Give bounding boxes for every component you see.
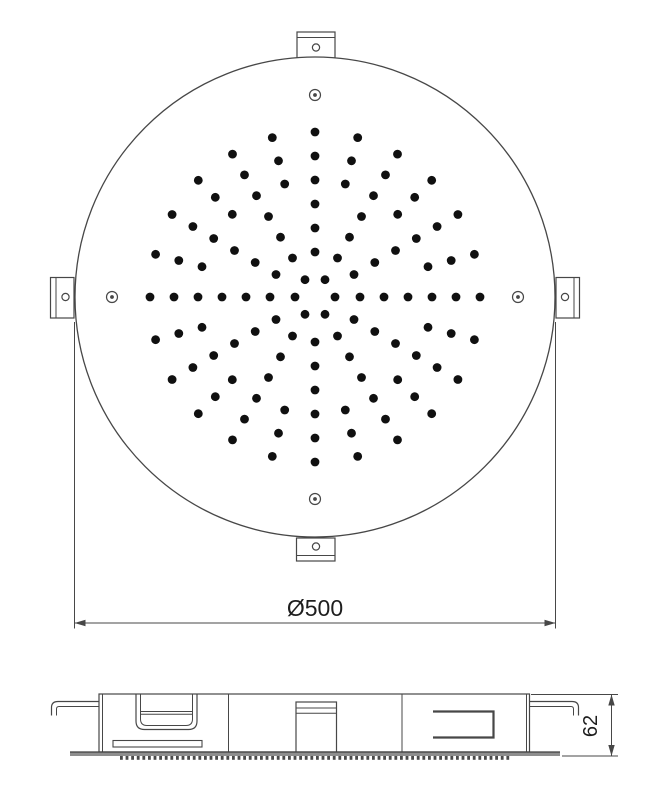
nozzle-dot <box>357 212 366 221</box>
nozzle-dot <box>198 262 207 271</box>
nozzle-dot <box>447 329 456 338</box>
side-profile-view <box>52 694 579 760</box>
nozzle-dot <box>194 293 203 302</box>
nozzle-dot <box>242 293 251 302</box>
bracket-hole <box>312 44 319 51</box>
nozzle-tip <box>350 756 353 760</box>
nozzle-dot <box>170 293 179 302</box>
screw-center <box>516 295 520 299</box>
nozzle-tip <box>355 756 358 760</box>
screw-hole <box>513 292 524 303</box>
nozzle-dot <box>410 392 419 401</box>
nozzle-tip <box>126 756 129 760</box>
nozzle-tip <box>462 756 465 760</box>
nozzle-tip <box>338 756 341 760</box>
nozzle-tip <box>394 756 397 760</box>
nozzle-dot <box>288 332 297 341</box>
bracket-hole <box>561 293 568 300</box>
water-inlet <box>296 702 337 752</box>
height-dimension-label: 62 <box>580 715 602 737</box>
mounting-clip-right <box>529 702 579 716</box>
nozzle-dot <box>369 394 378 403</box>
nozzle-dot <box>311 248 320 257</box>
nozzle-tip <box>165 756 168 760</box>
nozzle-tip <box>456 756 459 760</box>
nozzle-tip <box>238 756 241 760</box>
nozzle-dot <box>230 339 239 348</box>
nozzle-tip <box>305 756 308 760</box>
clip-inner-line <box>57 707 100 716</box>
nozzle-tip <box>294 756 297 760</box>
nozzle-dot <box>321 310 330 319</box>
nozzle-dot <box>333 332 342 341</box>
nozzle-dot <box>393 375 402 384</box>
nozzle-dot <box>476 293 485 302</box>
nozzle-dot <box>301 275 310 284</box>
nozzle-tip <box>288 756 291 760</box>
nozzle-dot <box>174 329 183 338</box>
nozzle-tip <box>176 756 179 760</box>
nozzle-tip <box>473 756 476 760</box>
nozzle-tip <box>495 756 498 760</box>
nozzle-tip <box>210 756 213 760</box>
nozzle-tip <box>439 756 442 760</box>
nozzle-dot <box>454 375 463 384</box>
dimension-arrowhead <box>608 745 614 756</box>
nozzle-dot <box>274 429 283 438</box>
diameter-dimension-label: Ø500 <box>287 595 343 621</box>
nozzle-tip <box>428 756 431 760</box>
nozzle-tip <box>159 756 162 760</box>
nozzle-dot <box>266 293 275 302</box>
nozzle-tip <box>170 756 173 760</box>
drawing-canvas: Ø500 62 <box>0 0 661 800</box>
inlet-body <box>296 702 337 752</box>
nozzle-dot <box>211 193 220 202</box>
nozzle-dot <box>381 415 390 424</box>
nozzle-dot <box>393 210 402 219</box>
nozzle-dot <box>311 128 320 137</box>
nozzle-tip <box>490 756 493 760</box>
nozzle-dot <box>151 250 160 259</box>
nozzle-dot <box>331 293 340 302</box>
nozzle-tip <box>445 756 448 760</box>
mounting-bracket-bottom <box>297 538 336 561</box>
nozzle-tip <box>344 756 347 760</box>
nozzle-dot <box>311 152 320 161</box>
nozzle-dot <box>391 246 400 255</box>
nozzle-dot <box>146 293 155 302</box>
nozzle-dot <box>240 415 249 424</box>
nozzle-dot <box>198 323 207 332</box>
nozzle-tip <box>366 756 369 760</box>
nozzle-dot <box>276 352 285 361</box>
nozzle-dot <box>341 180 350 189</box>
nozzle-dot <box>228 436 237 445</box>
nozzle-dot <box>268 133 277 142</box>
screw-center <box>313 497 317 501</box>
nozzle-tip <box>131 756 134 760</box>
nozzle-dot <box>427 409 436 418</box>
dimension-arrowhead <box>545 620 556 626</box>
nozzle-dot <box>151 335 160 344</box>
height-dimension <box>531 695 618 757</box>
nozzle-dot <box>211 392 220 401</box>
nozzle-dot <box>194 409 203 418</box>
nozzle-dot <box>350 270 359 279</box>
nozzle-dot <box>264 212 273 221</box>
nozzle-dot <box>311 176 320 185</box>
nozzle-dot <box>428 293 437 302</box>
nozzle-dot <box>356 293 365 302</box>
nozzle-dot <box>412 234 421 243</box>
nozzle-dot <box>168 375 177 384</box>
nozzle-tip <box>378 756 381 760</box>
mounting-bracket-top <box>297 32 335 58</box>
nozzle-dot <box>272 315 281 324</box>
nozzle-dot <box>370 258 379 267</box>
nozzle-dot <box>274 156 283 165</box>
nozzle-dot <box>228 210 237 219</box>
nozzle-dot <box>393 436 402 445</box>
nozzle-dot <box>268 452 277 461</box>
nozzle-dot <box>412 351 421 360</box>
screw-hole <box>310 90 321 101</box>
nozzle-dot <box>264 373 273 382</box>
nozzle-tip <box>478 756 481 760</box>
nozzle-dot <box>353 452 362 461</box>
nozzle-tip <box>271 756 274 760</box>
slot-opening <box>113 741 202 748</box>
nozzle-tip <box>361 756 364 760</box>
nozzle-tip <box>182 756 185 760</box>
nozzle-dot <box>424 262 433 271</box>
nozzle-dot <box>357 373 366 382</box>
nozzle-dot <box>311 224 320 233</box>
clip-outer-line <box>52 702 100 716</box>
nozzle-tip <box>260 756 263 760</box>
nozzle-dot <box>280 180 289 189</box>
nozzle-dot <box>321 275 330 284</box>
nozzle-dot <box>311 338 320 347</box>
nozzle-tip <box>310 756 313 760</box>
nozzle-dot <box>218 293 227 302</box>
nozzle-dot <box>311 200 320 209</box>
clip-inner-line <box>529 707 574 716</box>
nozzle-dot <box>272 270 281 279</box>
nozzle-dot <box>276 233 285 242</box>
nozzle-dot <box>447 256 456 265</box>
nozzle-tip <box>142 756 145 760</box>
nozzle-tip <box>120 756 123 760</box>
nozzle-dot <box>252 394 261 403</box>
shower-head-technical-drawing: Ø500 62 <box>0 0 661 800</box>
nozzle-dot <box>347 429 356 438</box>
nozzle-dot <box>345 233 354 242</box>
nozzle-dot <box>311 434 320 443</box>
nozzle-dot <box>240 171 249 180</box>
nozzle-tip <box>484 756 487 760</box>
nozzle-dot <box>370 327 379 336</box>
nozzle-tip <box>282 756 285 760</box>
nozzle-dot <box>391 339 400 348</box>
nozzle-tip <box>215 756 218 760</box>
nozzle-dot <box>433 222 442 231</box>
nozzle-dot <box>230 246 239 255</box>
nozzle-dot <box>350 315 359 324</box>
nozzle-tip <box>249 756 252 760</box>
nozzle-dot <box>353 133 362 142</box>
top-view <box>51 32 580 561</box>
nozzle-dot <box>311 458 320 467</box>
dimension-arrowhead <box>75 620 86 626</box>
nozzle-dot <box>381 171 390 180</box>
nozzle-tip <box>333 756 336 760</box>
spray-nozzles-strip <box>120 756 509 760</box>
mounting-bracket-left <box>51 278 75 319</box>
nozzle-dot <box>189 222 198 231</box>
nozzle-tip <box>193 756 196 760</box>
nozzle-tip <box>434 756 437 760</box>
nozzle-tip <box>221 756 224 760</box>
nozzle-tip <box>299 756 302 760</box>
nozzle-dot <box>347 156 356 165</box>
nozzle-tip <box>243 756 246 760</box>
bracket-hole <box>62 293 69 300</box>
nozzle-dot <box>291 293 300 302</box>
nozzle-dot <box>252 191 261 200</box>
nozzle-dot <box>194 176 203 185</box>
nozzle-tip <box>137 756 140 760</box>
nozzle-dot <box>433 363 442 372</box>
nozzle-dot <box>424 323 433 332</box>
nozzle-tip <box>411 756 414 760</box>
nozzle-tip <box>316 756 319 760</box>
nozzle-tip <box>372 756 375 760</box>
screw-center <box>313 93 317 97</box>
nozzle-dot <box>311 362 320 371</box>
nozzle-dot <box>209 234 218 243</box>
nozzle-tip <box>204 756 207 760</box>
nozzle-dot <box>228 150 237 159</box>
nozzle-dot <box>427 176 436 185</box>
nozzle-tip <box>506 756 509 760</box>
nozzle-tip <box>501 756 504 760</box>
nozzle-dot <box>333 254 342 263</box>
nozzle-dot <box>393 150 402 159</box>
nozzle-dot <box>410 193 419 202</box>
clip-outer-line <box>529 702 579 716</box>
nozzle-tip <box>226 756 229 760</box>
nozzle-dot <box>454 210 463 219</box>
nozzle-tip <box>383 756 386 760</box>
nozzle-tip <box>266 756 269 760</box>
nozzle-dot <box>168 210 177 219</box>
nozzle-tip <box>450 756 453 760</box>
nozzle-dot <box>470 250 479 259</box>
nozzle-dot <box>251 327 260 336</box>
nozzle-dot <box>345 352 354 361</box>
nozzle-tip <box>154 756 157 760</box>
mounting-bracket-right <box>556 278 580 319</box>
nozzle-dot <box>311 386 320 395</box>
nozzle-tip <box>277 756 280 760</box>
nozzle-tip <box>400 756 403 760</box>
nozzle-tip <box>406 756 409 760</box>
nozzle-tip <box>187 756 190 760</box>
nozzle-dot <box>280 406 289 415</box>
nozzle-tip <box>148 756 151 760</box>
nozzle-tip <box>232 756 235 760</box>
bracket-hole <box>312 543 319 550</box>
nozzle-tip <box>327 756 330 760</box>
nozzle-dot <box>228 375 237 384</box>
nozzle-tip <box>322 756 325 760</box>
nozzle-dot <box>452 293 461 302</box>
nozzle-dot <box>174 256 183 265</box>
dimension-arrowhead <box>608 695 614 706</box>
screw-hole <box>310 494 321 505</box>
nozzle-dot <box>189 363 198 372</box>
nozzle-dot <box>288 254 297 263</box>
mounting-clip-left <box>52 702 100 716</box>
nozzle-dot <box>311 410 320 419</box>
nozzle-dot <box>301 310 310 319</box>
nozzle-tip <box>417 756 420 760</box>
nozzle-dot <box>369 191 378 200</box>
nozzle-dot <box>380 293 389 302</box>
nozzle-tip <box>422 756 425 760</box>
nozzle-tip <box>389 756 392 760</box>
nozzle-dot <box>251 258 260 267</box>
nozzle-dot <box>209 351 218 360</box>
nozzle-dot <box>470 335 479 344</box>
nozzle-tip <box>198 756 201 760</box>
screw-center <box>110 295 114 299</box>
nozzle-dot <box>341 406 350 415</box>
nozzle-tip <box>467 756 470 760</box>
nozzle-tip <box>254 756 257 760</box>
nozzle-dot <box>404 293 413 302</box>
screw-hole <box>107 292 118 303</box>
